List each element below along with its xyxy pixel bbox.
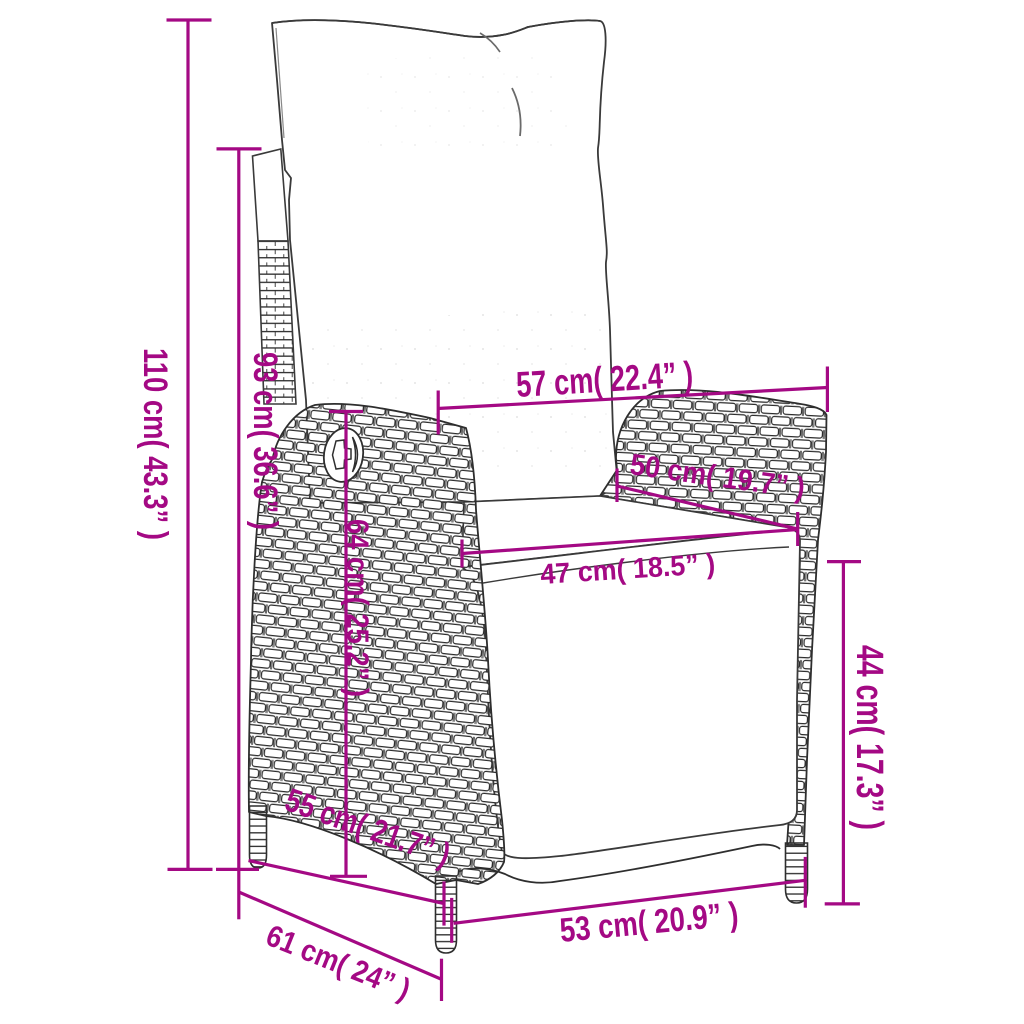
svg-text:64 cm( 25.2” ): 64 cm( 25.2” ) [341,519,376,697]
svg-text:110 cm( 43.3” ): 110 cm( 43.3” ) [136,348,174,540]
svg-text:93 cm( 36.6” ): 93 cm( 36.6” ) [246,352,284,530]
svg-text:44 cm( 17.3” ): 44 cm( 17.3” ) [848,645,890,830]
